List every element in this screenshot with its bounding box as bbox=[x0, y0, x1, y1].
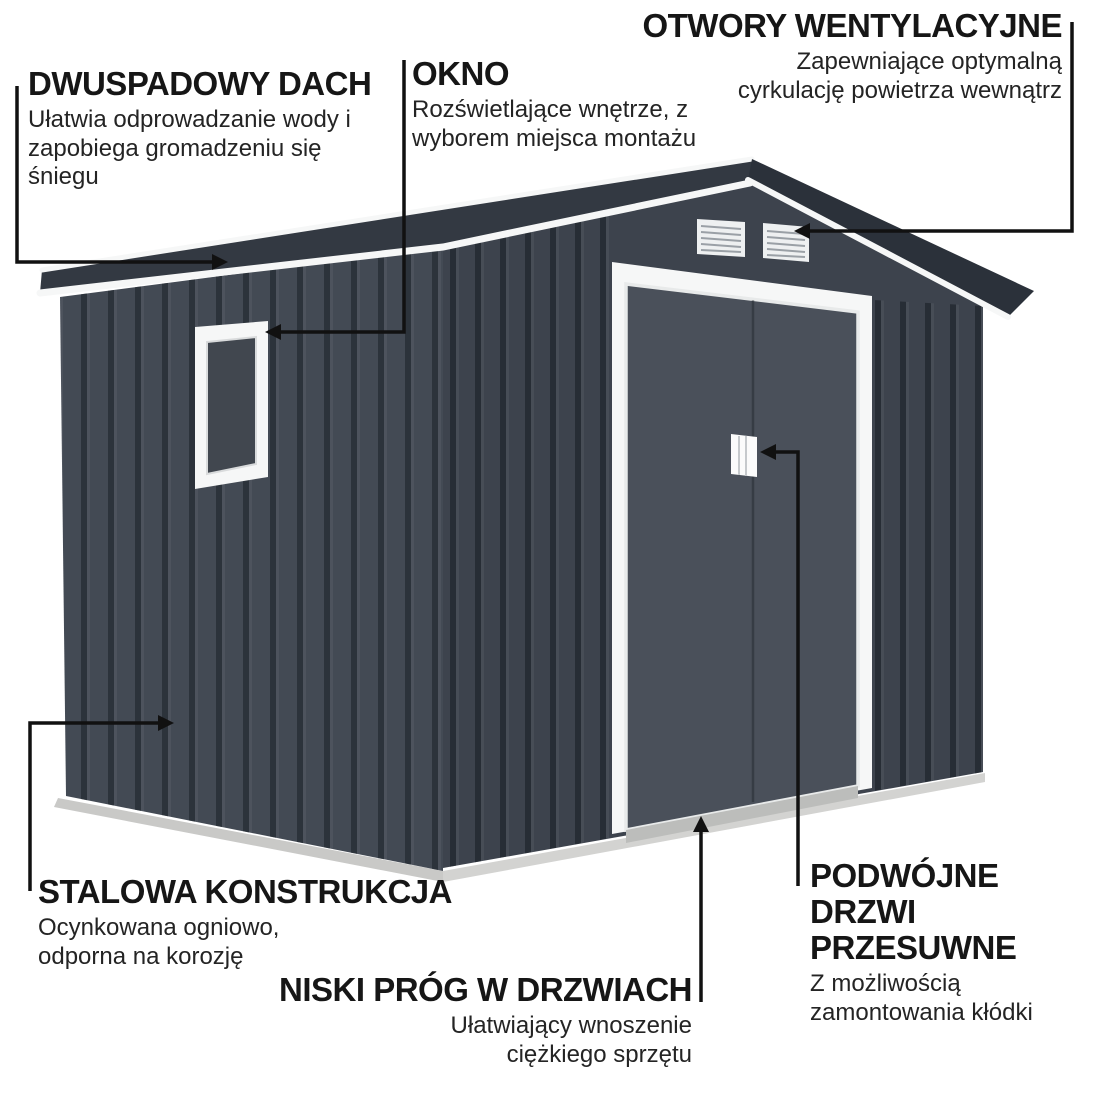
callout-threshold: NISKI PRÓG W DRZWIACH Ułatwiający wnosze… bbox=[279, 972, 692, 1069]
window-glass bbox=[207, 337, 256, 474]
callout-vents-description: Zapewniające optymalną cyrkulację powiet… bbox=[710, 48, 1062, 105]
callout-doors-title: PODWÓJNE DRZWI PRZESUWNE bbox=[810, 858, 1100, 966]
callout-threshold-title: NISKI PRÓG W DRZWIACH bbox=[279, 972, 692, 1008]
window bbox=[195, 321, 268, 489]
callout-roof-title: DWUSPADOWY DACH bbox=[28, 66, 373, 102]
callout-roof-description: Ułatwia odprowadzanie wody i zapobiega g… bbox=[28, 106, 373, 192]
door-handle bbox=[731, 434, 757, 477]
shed-infographic: DWUSPADOWY DACH Ułatwia odprowadzanie wo… bbox=[0, 0, 1100, 1100]
callout-doors-description: Z możliwością zamontowania kłódki bbox=[810, 970, 1092, 1027]
callout-vents: OTWORY WENTYLACYJNE Zapewniające optymal… bbox=[642, 8, 1062, 105]
vent-left bbox=[697, 219, 745, 257]
callout-structure-title: STALOWA KONSTRUKCJA bbox=[38, 874, 452, 910]
callout-doors: PODWÓJNE DRZWI PRZESUWNE Z możliwością z… bbox=[810, 858, 1100, 1027]
callout-threshold-description: Ułatwiający wnoszenie ciężkiego sprzętu bbox=[380, 1012, 692, 1069]
callout-structure: STALOWA KONSTRUKCJA Ocynkowana ogniowo, … bbox=[38, 874, 452, 971]
callout-structure-description: Ocynkowana ogniowo, odporna na korozję bbox=[38, 914, 340, 971]
door-panel bbox=[626, 284, 858, 830]
front-wall-corrugation-right bbox=[873, 300, 983, 791]
callout-vents-title: OTWORY WENTYLACYJNE bbox=[642, 8, 1062, 44]
front-wall-corrugation-left bbox=[443, 212, 610, 868]
callout-roof: DWUSPADOWY DACH Ułatwia odprowadzanie wo… bbox=[28, 66, 373, 192]
